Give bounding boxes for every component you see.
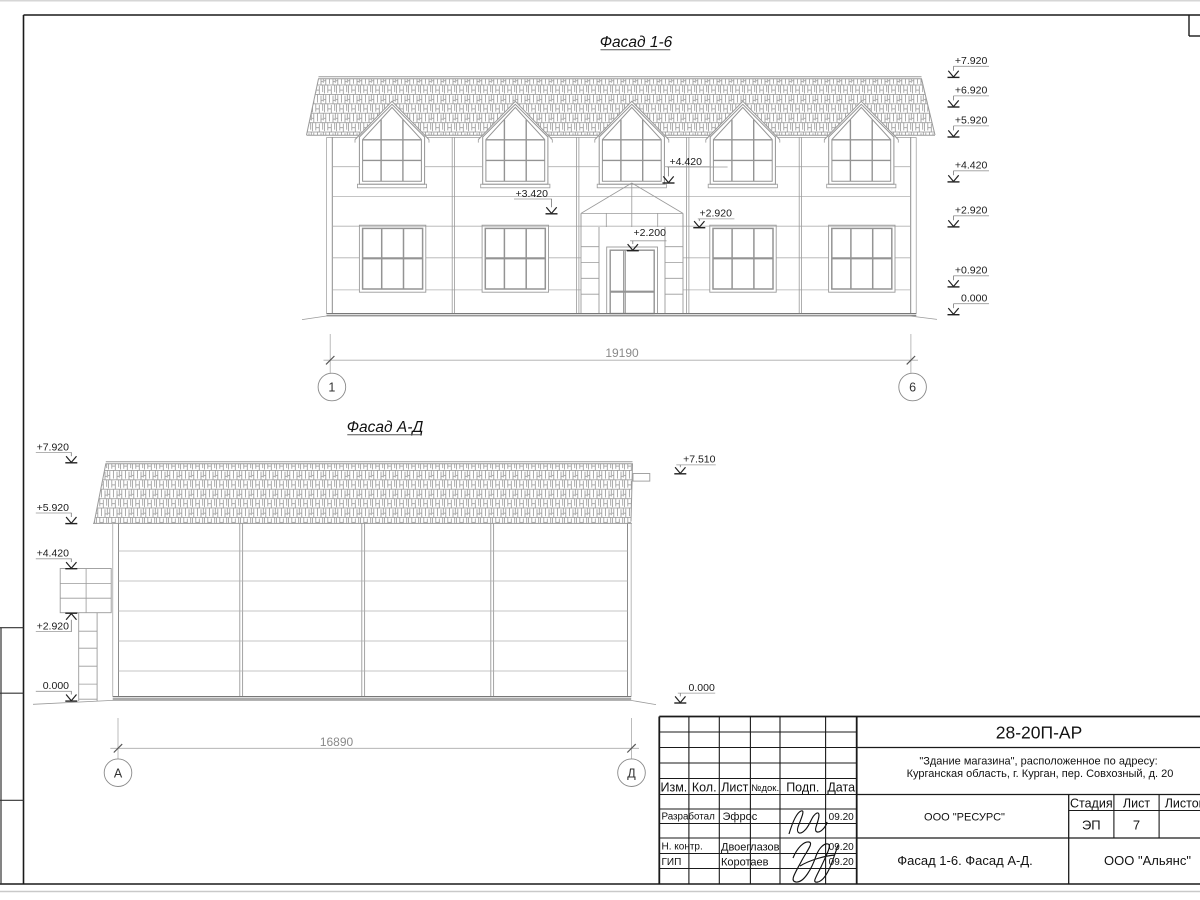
svg-text:Фасад 1-6: Фасад 1-6	[600, 34, 673, 51]
svg-text:Лист: Лист	[1123, 796, 1150, 810]
svg-text:0.000: 0.000	[43, 680, 69, 692]
svg-text:+2.920: +2.920	[37, 620, 70, 632]
svg-text:Подп.: Подп.	[786, 781, 819, 795]
svg-text:Д: Д	[627, 766, 636, 780]
svg-text:Эфрос: Эфрос	[723, 811, 758, 823]
svg-text:Изм.: Изм.	[661, 781, 688, 795]
svg-text:ООО "РЕСУРС": ООО "РЕСУРС"	[924, 811, 1005, 823]
svg-text:0.000: 0.000	[961, 293, 987, 305]
svg-text:А: А	[114, 766, 123, 780]
svg-text:6: 6	[909, 381, 916, 395]
svg-text:"Здание магазина", расположенн: "Здание магазина", расположенное по адре…	[919, 756, 1157, 768]
svg-text:+4.420: +4.420	[955, 160, 988, 172]
svg-text:+3.420: +3.420	[516, 188, 549, 200]
svg-text:0.000: 0.000	[689, 682, 715, 694]
svg-text:09.20: 09.20	[829, 812, 854, 823]
svg-text:28-20П-АР: 28-20П-АР	[996, 723, 1083, 743]
svg-text:+6.920: +6.920	[955, 85, 988, 97]
svg-text:+7.920: +7.920	[37, 441, 70, 453]
svg-text:Лист: Лист	[721, 781, 748, 795]
svg-text:09.20: 09.20	[829, 842, 854, 853]
svg-text:1: 1	[328, 381, 335, 395]
svg-text:Курганская область, г. Курган,: Курганская область, г. Курган, пер. Совх…	[907, 768, 1174, 780]
svg-text:+0.920: +0.920	[955, 265, 988, 277]
svg-text:+2.920: +2.920	[700, 208, 733, 220]
svg-text:ЭП: ЭП	[1082, 817, 1101, 832]
svg-text:Разработал: Разработал	[662, 812, 716, 823]
svg-text:№док.: №док.	[751, 783, 779, 794]
svg-text:ООО "Альянс": ООО "Альянс"	[1104, 853, 1191, 868]
svg-text:ГИП: ГИП	[662, 857, 682, 868]
svg-text:+5.920: +5.920	[955, 115, 988, 127]
svg-text:+2.200: +2.200	[634, 227, 667, 239]
svg-text:+7.510: +7.510	[683, 454, 716, 466]
svg-text:19190: 19190	[605, 346, 639, 360]
svg-text:Стадия: Стадия	[1070, 796, 1113, 810]
svg-text:16890: 16890	[320, 735, 354, 749]
svg-text:Двоеглазов: Двоеглазов	[721, 841, 780, 853]
svg-text:+5.920: +5.920	[37, 502, 70, 514]
svg-text:+2.920: +2.920	[955, 205, 988, 217]
svg-text:Кол.: Кол.	[692, 781, 717, 795]
svg-text:09.20: 09.20	[829, 857, 854, 868]
svg-text:Фасад А-Д: Фасад А-Д	[347, 419, 424, 436]
svg-text:Фасад 1-6. Фасад А-Д.: Фасад 1-6. Фасад А-Д.	[897, 853, 1033, 868]
svg-text:Листов: Листов	[1165, 796, 1200, 810]
svg-text:Коротаев: Коротаев	[721, 856, 769, 868]
svg-text:7: 7	[1133, 817, 1140, 832]
svg-text:+7.920: +7.920	[955, 55, 988, 67]
svg-text:Н. контр.: Н. контр.	[662, 842, 703, 853]
svg-text:+4.420: +4.420	[37, 548, 70, 560]
svg-text:Дата: Дата	[827, 781, 855, 795]
svg-text:+4.420: +4.420	[670, 156, 703, 168]
